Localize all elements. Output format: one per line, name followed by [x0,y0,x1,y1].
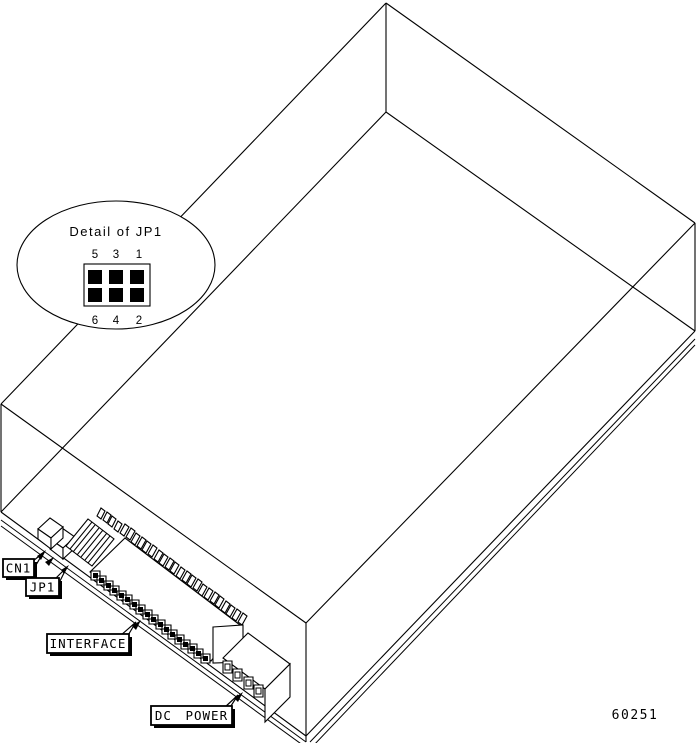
pin-number-5: 5 [92,249,98,261]
jumper-pin-4 [109,288,123,302]
drive-wireframe [1,3,695,743]
edge-front-right-bottom [306,331,695,736]
edge-front-right-top [306,223,695,623]
drive-connector-diagram: Detail of JP1 5 3 1 6 4 2 [0,0,697,743]
dc-pin-3 [244,677,253,689]
pcb-edge-right-1 [310,339,695,742]
pin-number-6: 6 [92,315,98,327]
edge-top-left [1,3,386,404]
cn1-label: CN1 [3,550,54,580]
pin-number-2: 2 [136,315,142,327]
figure-number: 60251 [612,708,659,723]
connectors [38,508,290,722]
interface-label-text: INTERFACE [50,636,127,651]
callout-title: Detail of JP1 [69,224,162,239]
jumper-pin-1 [130,270,144,284]
jumper-pin-2 [130,288,144,302]
pcb-edge-right-2 [313,345,695,743]
jumper-pin-5 [88,270,102,284]
dc-pin-4 [254,685,263,697]
dc-power-label: DC POWER [151,692,243,728]
dc-power-label-text: DC POWER [155,708,228,723]
pin-number-3: 3 [113,249,119,261]
interface-label: INTERFACE [47,620,141,656]
edge-top-right [386,3,695,223]
edge-bottom-back-right [386,112,695,331]
diagram-page: Detail of JP1 5 3 1 6 4 2 [0,0,697,743]
jumper-pin-6 [88,288,102,302]
jp1-detail-callout: Detail of JP1 5 3 1 6 4 2 [17,201,215,329]
cn1-label-text: CN1 [6,561,32,576]
jp1-label-text: JP1 [30,580,56,595]
dc-pin-2 [233,669,242,681]
dc-pin-1 [223,661,232,673]
pin-number-4: 4 [113,315,120,327]
pin-number-1: 1 [136,249,142,261]
jumper-pin-3 [109,270,123,284]
